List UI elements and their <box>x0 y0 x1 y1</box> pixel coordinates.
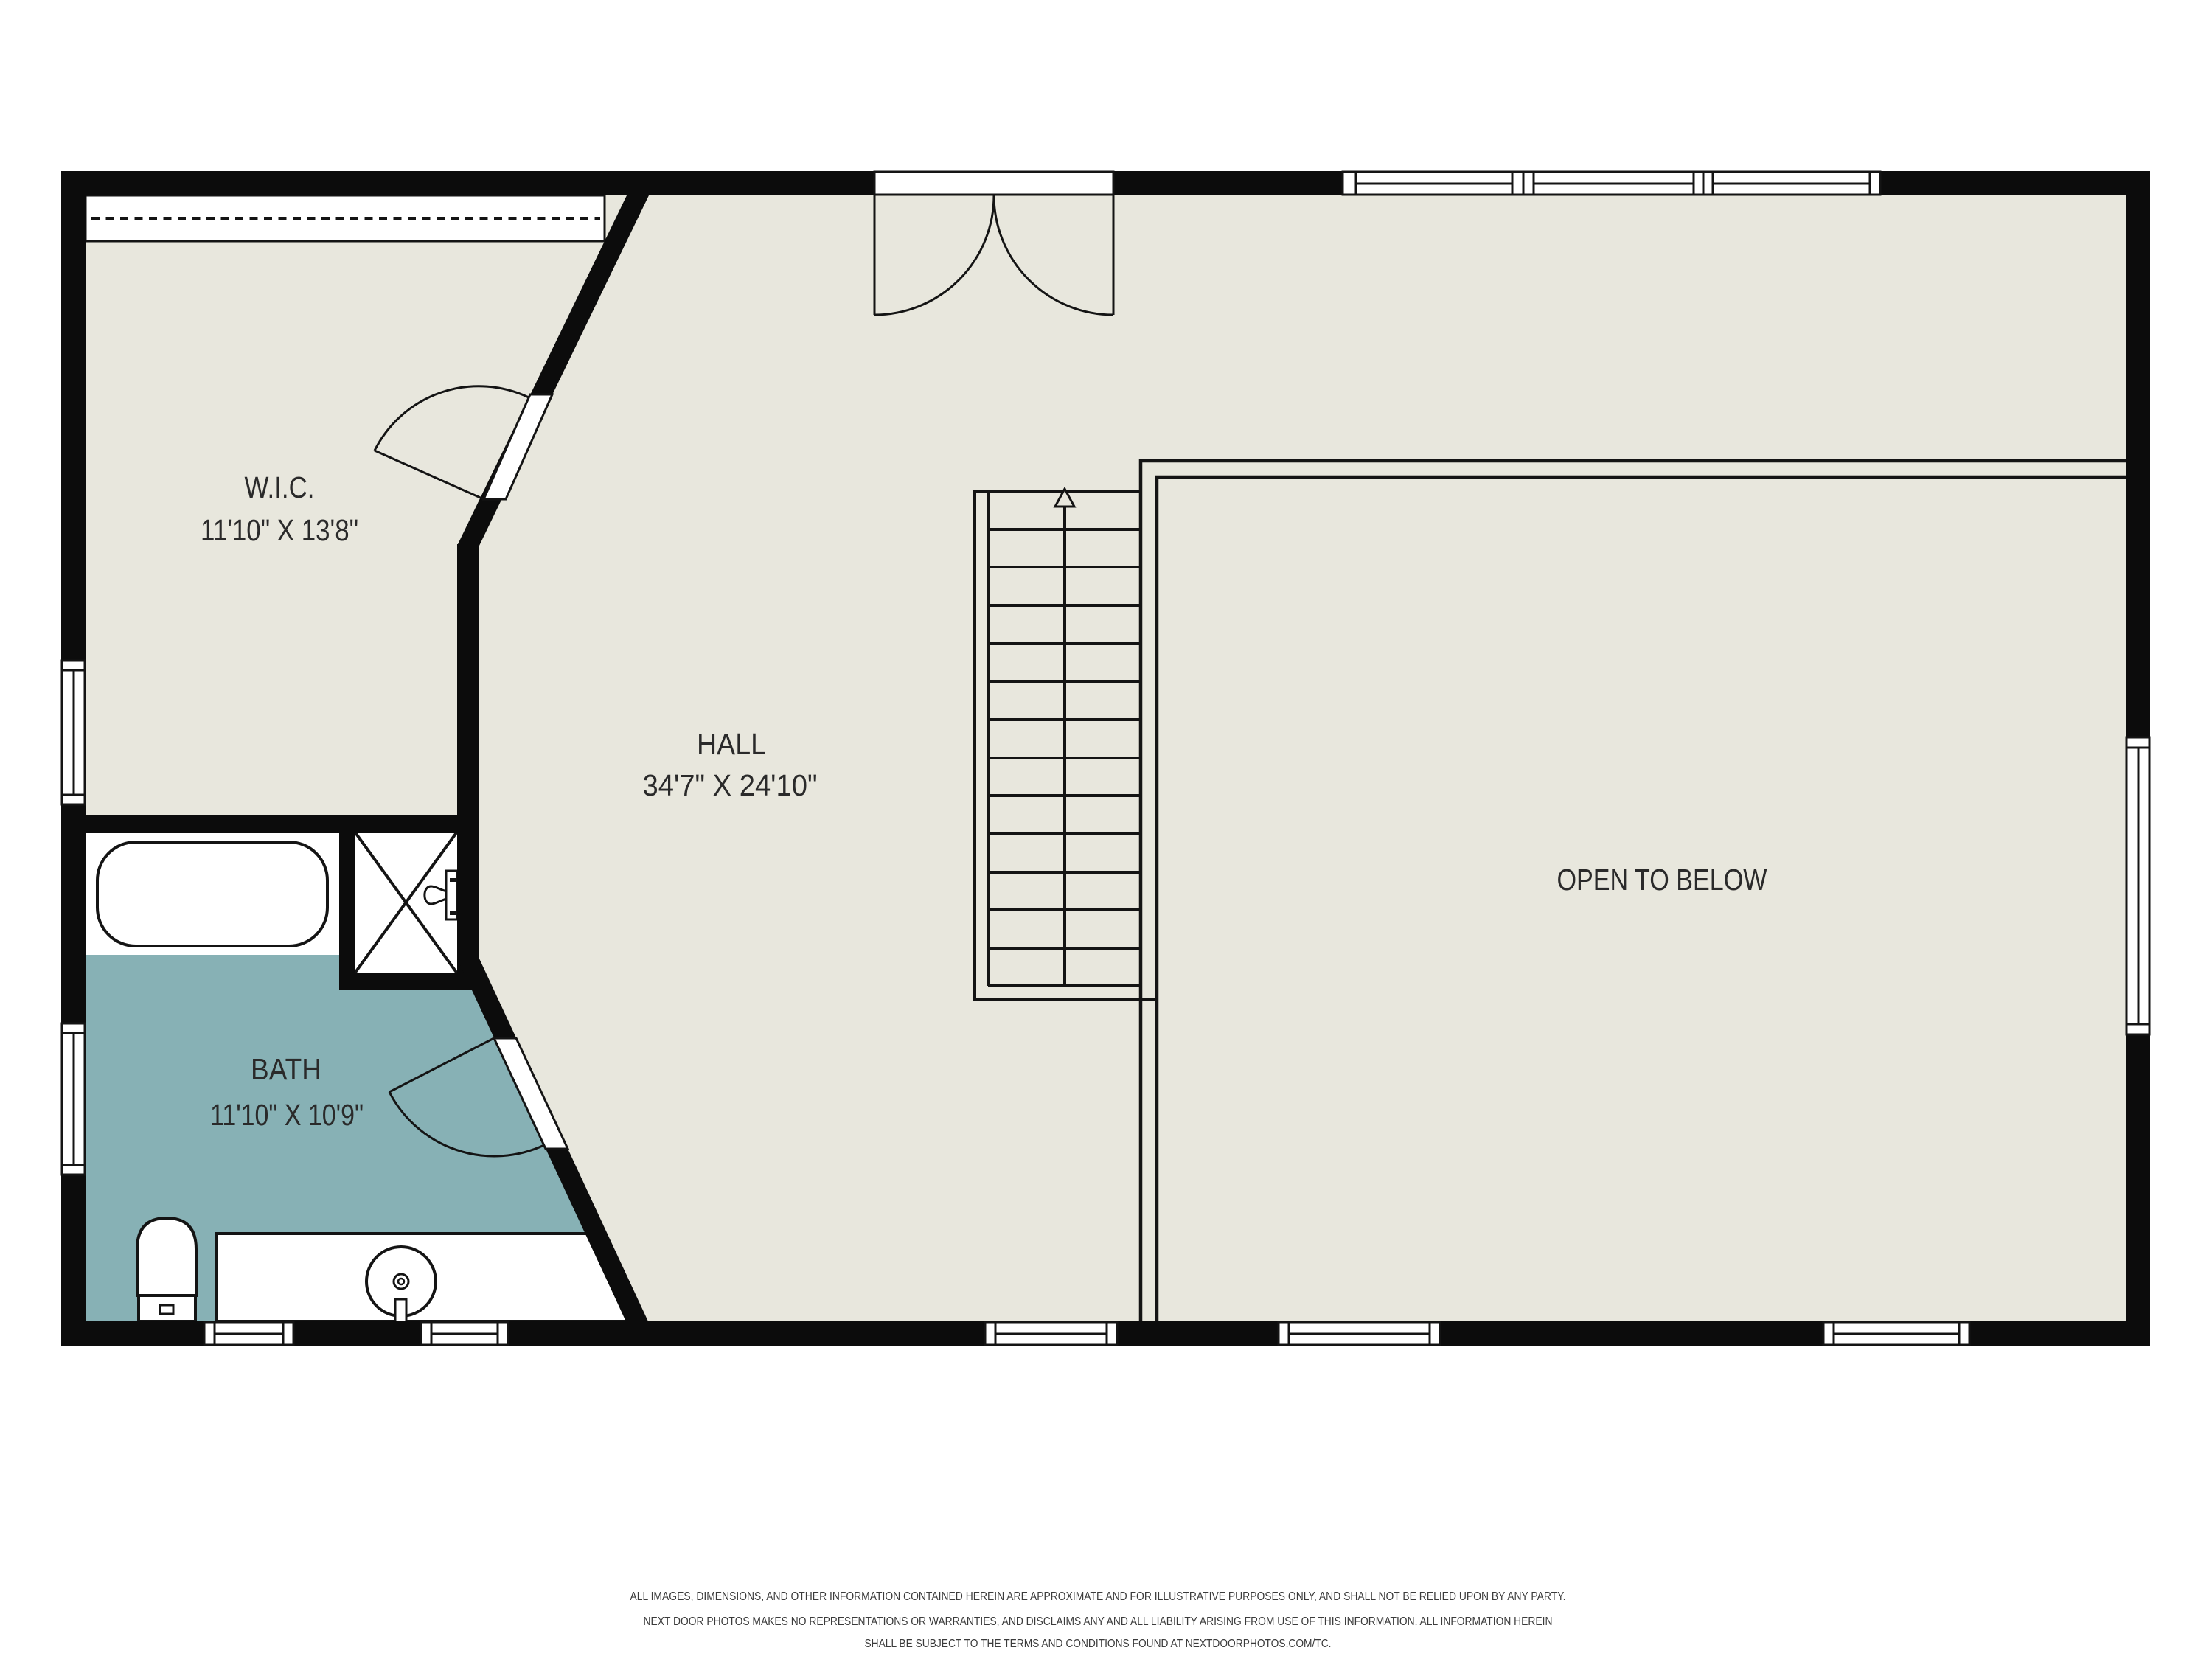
svg-text:11'10" X 10'9": 11'10" X 10'9" <box>210 1098 364 1132</box>
svg-text:NEXT DOOR PHOTOS MAKES NO REPR: NEXT DOOR PHOTOS MAKES NO REPRESENTATION… <box>644 1615 1553 1628</box>
svg-text:34'7" X 24'10": 34'7" X 24'10" <box>643 768 818 802</box>
svg-text:11'10" X 13'8": 11'10" X 13'8" <box>201 513 358 547</box>
svg-text:W.I.C.: W.I.C. <box>245 470 315 504</box>
svg-text:OPEN TO BELOW: OPEN TO BELOW <box>1557 863 1767 897</box>
svg-text:SHALL BE SUBJECT TO THE TERMS: SHALL BE SUBJECT TO THE TERMS AND CONDIT… <box>865 1638 1332 1650</box>
svg-text:ALL IMAGES, DIMENSIONS, AND OT: ALL IMAGES, DIMENSIONS, AND OTHER INFORM… <box>630 1590 1566 1603</box>
svg-text:BATH: BATH <box>251 1052 321 1086</box>
svg-text:HALL: HALL <box>697 727 766 761</box>
